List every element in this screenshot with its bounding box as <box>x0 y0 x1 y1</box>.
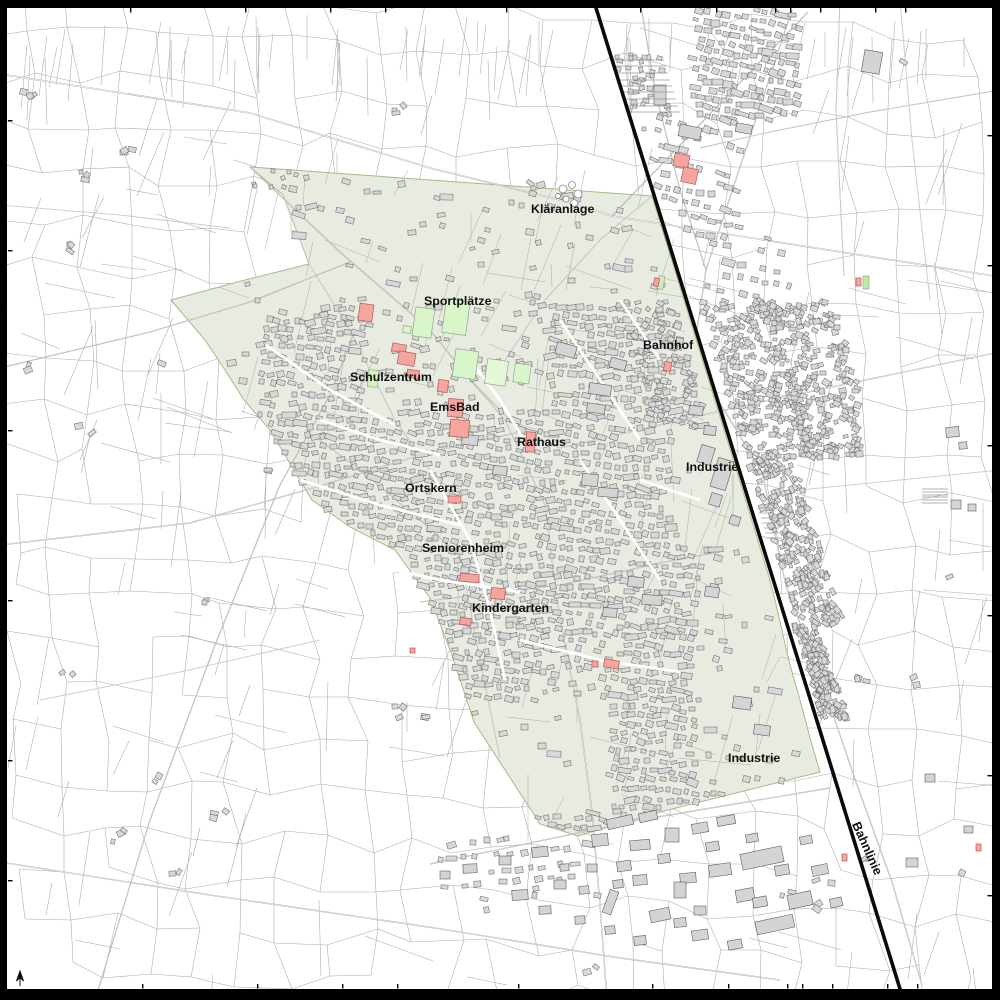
svg-text:Ortskern: Ortskern <box>405 481 457 495</box>
svg-text:Rathaus: Rathaus <box>517 435 566 449</box>
svg-text:Seniorenheim: Seniorenheim <box>422 541 504 555</box>
svg-text:EmsBad: EmsBad <box>430 400 480 414</box>
svg-text:Industrie: Industrie <box>686 460 738 474</box>
svg-text:Schulzentrum: Schulzentrum <box>350 370 432 384</box>
svg-text:Kläranlage: Kläranlage <box>531 202 594 216</box>
svg-text:Sportplätze: Sportplätze <box>424 294 492 308</box>
svg-text:Kindergarten: Kindergarten <box>472 601 549 615</box>
svg-text:Bahnhof: Bahnhof <box>643 338 694 352</box>
svg-text:Industrie: Industrie <box>728 751 780 765</box>
